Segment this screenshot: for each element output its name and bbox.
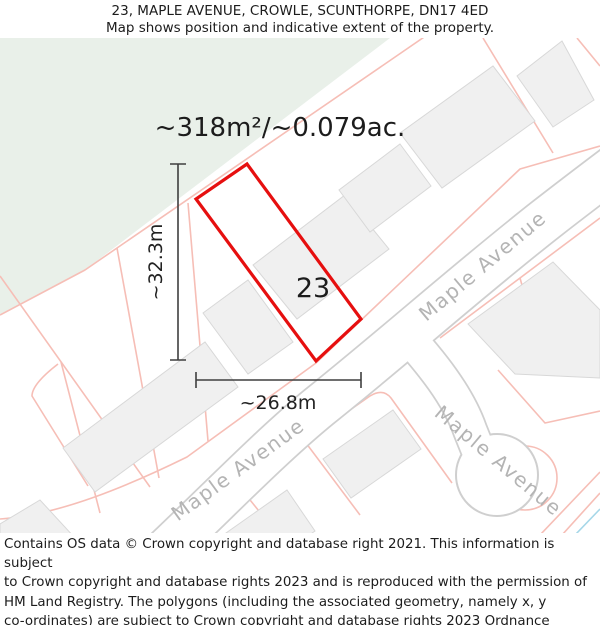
drain-line — [575, 509, 600, 533]
area-label: ~318m²/~0.079ac. — [155, 113, 406, 143]
building — [0, 500, 75, 533]
map-header: 23, MAPLE AVENUE, CROWLE, SCUNTHORPE, DN… — [0, 0, 600, 38]
plot-number-label: 23 — [296, 273, 330, 304]
map-canvas: ~318m²/~0.079ac. 23 ~32.3m ~26.8m Maple … — [0, 38, 600, 533]
page-subtitle: Map shows position and indicative extent… — [0, 20, 600, 37]
copyright-line: to Crown copyright and database rights 2… — [4, 573, 596, 592]
map-svg: ~318m²/~0.079ac. 23 ~32.3m ~26.8m Maple … — [0, 38, 600, 533]
building — [400, 66, 535, 188]
copyright-line: HM Land Registry. The polygons (includin… — [4, 593, 596, 612]
page: 23, MAPLE AVENUE, CROWLE, SCUNTHORPE, DN… — [0, 0, 600, 625]
horizontal-dimension-label: ~26.8m — [240, 392, 317, 414]
vertical-dimension-label: ~32.3m — [145, 224, 167, 301]
copyright-notice: Contains OS data © Crown copyright and d… — [0, 533, 600, 625]
copyright-line: co-ordinates) are subject to Crown copyr… — [4, 612, 596, 625]
page-title: 23, MAPLE AVENUE, CROWLE, SCUNTHORPE, DN… — [0, 0, 600, 20]
copyright-line: Contains OS data © Crown copyright and d… — [4, 535, 596, 573]
building-terrace — [63, 342, 238, 492]
